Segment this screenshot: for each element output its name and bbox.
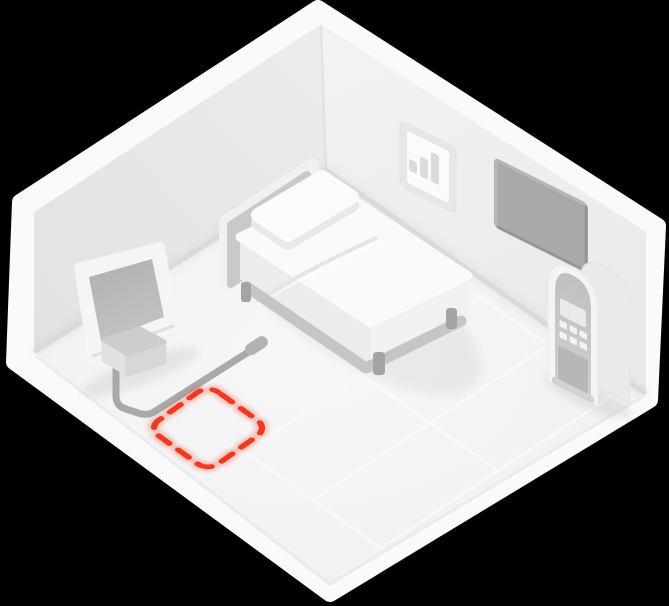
media-box xyxy=(104,329,164,374)
isometric-bedroom-illustration xyxy=(0,0,669,606)
bed-leg xyxy=(241,282,251,302)
illustration-stage xyxy=(0,0,669,606)
bed-leg xyxy=(373,352,385,375)
bed-leg xyxy=(446,308,457,329)
